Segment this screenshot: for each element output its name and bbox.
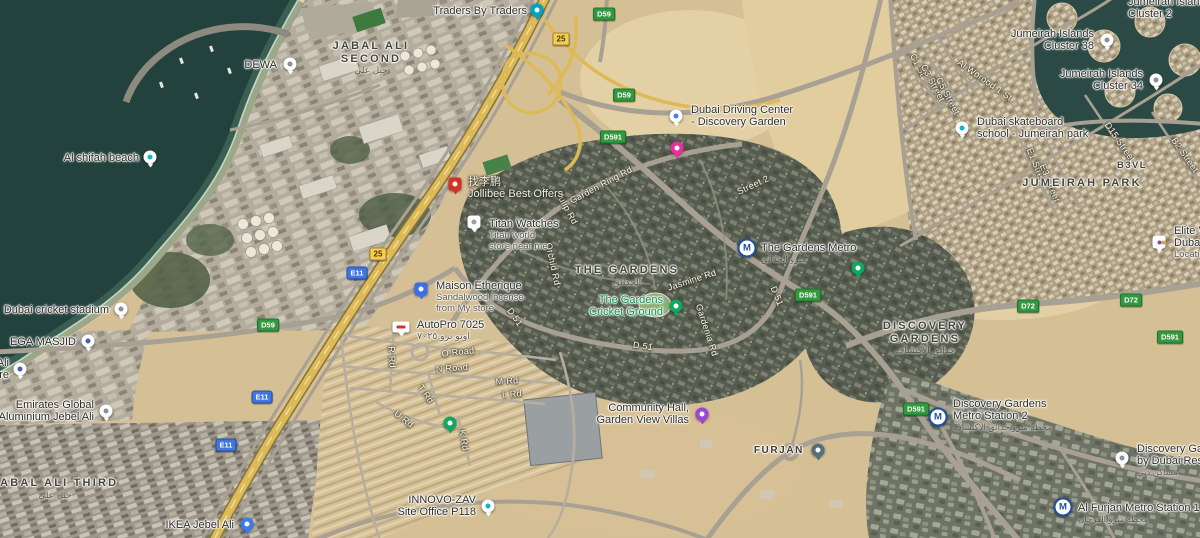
al-furjan-metro-1-label[interactable]: Al Furjan Metro Station 1محطة مترو الفرج… bbox=[1078, 502, 1200, 524]
poi-label-line: FURJAN bbox=[754, 445, 804, 457]
road-label-t-rd: T Rd bbox=[416, 383, 436, 406]
innovo-zav-site-office-label[interactable]: INNOVO-ZAVSite Office P118 bbox=[398, 494, 476, 518]
pin-tail bbox=[103, 418, 109, 422]
district-line: JUMEIRAH PARK bbox=[1022, 177, 1141, 190]
poi-label-line: EGA MASJID bbox=[10, 336, 76, 348]
route-marker-e11-11: E11 bbox=[216, 439, 237, 452]
pin-tail bbox=[452, 191, 458, 195]
emirates-global-aluminium-pin-glyph bbox=[104, 409, 109, 414]
dewa-pin[interactable] bbox=[284, 58, 297, 71]
road-label-b2-street: B2 Street bbox=[1169, 136, 1200, 175]
route-marker-25-13: 25 bbox=[370, 248, 387, 261]
dubai-cricket-stadium-label[interactable]: Dubai cricket stadium bbox=[4, 304, 109, 316]
road-label-d-51: D 51 bbox=[769, 285, 786, 307]
poi-label-line: Cricket Ground bbox=[589, 306, 663, 318]
discovery-gardens-residence-clipped-pin-glyph bbox=[1120, 456, 1125, 461]
poi-sublabel-line: from My store bbox=[436, 303, 524, 314]
discovery-gardens-residence-clipped-pin[interactable] bbox=[1116, 452, 1129, 465]
poi-label-line: Al shifah beach bbox=[64, 152, 139, 164]
dewa-label[interactable]: DEWA bbox=[244, 59, 277, 71]
pin-tail bbox=[1119, 465, 1125, 469]
clipped-left-poi-pin-glyph bbox=[18, 367, 23, 372]
elite-clipped-pin[interactable] bbox=[1153, 236, 1166, 249]
poi-label-line: Jollibee Best Offers bbox=[468, 188, 563, 200]
poi-label-line: Dubai Driving Center bbox=[691, 104, 793, 116]
emirates-global-aluminium-pin[interactable] bbox=[100, 405, 113, 418]
route-marker-d59-1: D59 bbox=[613, 89, 635, 102]
poi-label-line: Cluster 38 bbox=[1011, 40, 1094, 52]
autopro-7025-pin[interactable] bbox=[393, 322, 410, 333]
pin-tail bbox=[447, 430, 453, 434]
road-label-garden-ring-rd: Garden Ring Rd bbox=[568, 164, 634, 205]
poi-label-line: re bbox=[0, 369, 9, 381]
road-label-l-rd: L Rd bbox=[502, 388, 523, 399]
route-marker-d72-7: D72 bbox=[1017, 300, 1039, 313]
poi-label-line: Aluminium Jebel Ali bbox=[0, 411, 94, 423]
the-gardens-metro-metro-icon[interactable]: M bbox=[738, 239, 757, 258]
jollibee-best-offers-pin-glyph bbox=[453, 182, 458, 187]
poi-label-line: - Discovery Garden bbox=[691, 116, 793, 128]
jumeirah-islands-cluster-34-pin[interactable] bbox=[1150, 74, 1163, 87]
pin-tail bbox=[1104, 47, 1110, 51]
road-label-m-rd: M Rd bbox=[495, 375, 518, 387]
poi-label-line: Dubai skateboard bbox=[977, 116, 1088, 128]
pin-tail bbox=[1156, 249, 1162, 253]
dubai-cricket-stadium-pin[interactable] bbox=[115, 303, 128, 316]
poi-label-line: Maison Etherique bbox=[436, 280, 524, 292]
traders-by-traders-pin-glyph bbox=[535, 8, 540, 13]
poi-label-line: IKEA Jebel Ali bbox=[166, 519, 235, 531]
al-shifah-beach-pin[interactable] bbox=[144, 151, 157, 164]
route-marker-e11-10: E11 bbox=[252, 391, 273, 404]
dewa-pin-glyph bbox=[288, 62, 293, 67]
road-label-d-51: D 51 bbox=[632, 340, 653, 353]
road-label-d15-street: D15 Street bbox=[1103, 120, 1138, 163]
maison-etherique-label[interactable]: Maison EtheriqueSandalwood incensefrom M… bbox=[436, 280, 524, 314]
poi-label-line: The Gardens bbox=[589, 294, 663, 306]
clipped-left-poi-pin[interactable] bbox=[14, 363, 27, 376]
discovery-gardens-residence-clipped-label[interactable]: Discovery Gardby Dubai Residمساكن دبي bbox=[1137, 443, 1200, 477]
district-arabic-label: الحدائق bbox=[575, 277, 679, 288]
poi-label-line: DEWA bbox=[244, 59, 277, 71]
clipped-left-poi-label[interactable]: Alire bbox=[0, 357, 9, 381]
route-marker-d591-6: D591 bbox=[1157, 331, 1183, 344]
poi-label-line: Elite V bbox=[1174, 225, 1200, 237]
dubai-skateboard-school-pin[interactable] bbox=[956, 122, 969, 135]
titan-watches-pin[interactable] bbox=[468, 216, 481, 229]
pin-tail bbox=[815, 457, 821, 461]
furjan-pin-glyph bbox=[816, 448, 821, 453]
park-pin-villas-pin-glyph bbox=[448, 421, 453, 426]
traders-by-traders-label[interactable]: Traders By Traders bbox=[433, 5, 527, 17]
route-marker-e11-9: E11 bbox=[347, 267, 368, 280]
district-line: GARDENS bbox=[883, 333, 967, 346]
pin-tail bbox=[674, 155, 680, 159]
jollibee-best-offers-pin[interactable] bbox=[449, 178, 462, 191]
emirates-global-aluminium-label[interactable]: Emirates GlobalAluminium Jebel Ali bbox=[0, 399, 94, 423]
poi-label-line: Discovery Gardens bbox=[953, 398, 1052, 410]
route-marker-d591-2: D591 bbox=[600, 131, 626, 144]
route-marker-d72-8: D72 bbox=[1120, 294, 1142, 307]
pin-tail bbox=[855, 275, 861, 279]
traders-by-traders-pin[interactable] bbox=[531, 4, 544, 17]
jumeirah-islands-cluster-38-pin[interactable] bbox=[1101, 34, 1114, 47]
poi-label-line: Community Hall, bbox=[596, 402, 689, 414]
poi-label-line: 找李鹏 bbox=[468, 176, 563, 188]
jumeirah-islands-cluster-34-label[interactable]: Jumeirah IslandsCluster 34 bbox=[1060, 68, 1143, 92]
poi-label-line: Emirates Global bbox=[0, 399, 94, 411]
district-jabal-ali-third: JABAL ALI THIRDجبل علي bbox=[0, 477, 118, 501]
poi-label-line: Jumeirah Islands bbox=[1060, 68, 1143, 80]
district-line: B3VL bbox=[1117, 160, 1147, 173]
elite-clipped-label[interactable]: Elite VDubaLocatio bbox=[1174, 225, 1200, 260]
innovo-zav-site-office-pin[interactable] bbox=[482, 500, 495, 513]
poi-label-line: Al Furjan Metro Station 1 bbox=[1078, 502, 1200, 514]
pin-tail bbox=[418, 296, 424, 300]
park-pin-gardens-east-pin[interactable] bbox=[852, 262, 865, 275]
district-jumeirah-park: JUMEIRAH PARK bbox=[1022, 177, 1141, 190]
route-marker-d59-0: D59 bbox=[593, 8, 615, 21]
pin-tail bbox=[147, 164, 153, 168]
poi-label-line: Garden View Villas bbox=[596, 414, 689, 426]
poi-label-line: Ali bbox=[0, 357, 9, 369]
furjan-pin[interactable] bbox=[812, 444, 825, 457]
ega-masjid-pin[interactable] bbox=[82, 335, 95, 348]
dubai-driving-center-pin-glyph bbox=[674, 114, 679, 119]
poi-label-line: Cluster 34 bbox=[1060, 80, 1143, 92]
ega-masjid-pin-glyph bbox=[86, 339, 91, 344]
road-label-street-2: Street 2 bbox=[736, 173, 771, 196]
poi-label-line: Duba bbox=[1174, 237, 1200, 249]
poi-label-line: Cluster 2 bbox=[1128, 8, 1200, 20]
poi-label-line: Jumeirah Islands bbox=[1128, 0, 1200, 8]
dubai-skateboard-school-label[interactable]: Dubai skateboardschool - Jumeirah park bbox=[977, 116, 1088, 140]
ikea-jebel-ali-pin[interactable] bbox=[241, 518, 254, 531]
district-jabal-ali-second: JABAL ALISECONDجبل علي bbox=[333, 40, 410, 76]
poi-sublabel-line: اوتو برو ٧٠٢٥ bbox=[417, 331, 484, 342]
map-overlays: Garden Ring RdStreet 2Tulip RdOrchid RdJ… bbox=[0, 0, 1200, 538]
district-the-gardens: THE GARDENSالحدائق bbox=[575, 264, 679, 288]
pink-poi-pin-pin-glyph bbox=[675, 146, 680, 151]
pin-tail bbox=[398, 333, 404, 337]
road-label-n-road: N Road bbox=[436, 362, 469, 374]
discovery-gardens-metro-2-label[interactable]: Discovery GardensMetro Station 2محطة متر… bbox=[953, 398, 1052, 432]
poi-arabic-label: مترو الحدائق bbox=[761, 254, 856, 264]
community-hall-gardenview-label[interactable]: Community Hall,Garden View Villas bbox=[596, 402, 689, 426]
pin-tail bbox=[673, 313, 679, 317]
pin-tail bbox=[118, 316, 124, 320]
elite-clipped-pin-glyph bbox=[1157, 240, 1161, 244]
road-label-al-worood-1-st: Al Worood 1 St bbox=[956, 57, 1015, 102]
route-marker-d591-5: D591 bbox=[903, 403, 929, 416]
route-marker-d59-3: D59 bbox=[257, 319, 279, 332]
poi-label-line: Titan Watches bbox=[489, 218, 559, 230]
pin-tail bbox=[244, 531, 250, 535]
poi-label-line: Metro Station 2 bbox=[953, 410, 1052, 422]
ikea-jebel-ali-pin-glyph bbox=[245, 522, 250, 527]
poi-label-line: INNOVO-ZAV bbox=[398, 494, 476, 506]
pin-tail bbox=[673, 123, 679, 127]
road-label-r-rd: R Rd bbox=[386, 346, 397, 368]
maison-etherique-pin[interactable] bbox=[415, 283, 428, 296]
pin-tail bbox=[534, 17, 540, 21]
maison-etherique-pin-glyph bbox=[419, 287, 424, 292]
poi-sublabel-line: Locatio bbox=[1174, 249, 1200, 260]
district-line: DISCOVERY bbox=[883, 320, 967, 333]
autopro-7025-label[interactable]: AutoPro 7025اوتو برو ٧٠٢٥ bbox=[417, 319, 484, 342]
road-label-gardenia-rd: Gardenia Rd bbox=[694, 303, 720, 358]
autopro-7025-pin-glyph bbox=[397, 326, 406, 329]
poi-label-line: The Gardens Metro bbox=[761, 242, 856, 254]
district-arabic-label: جبل علي bbox=[0, 490, 118, 501]
poi-label-line: Site Office P118 bbox=[398, 506, 476, 518]
gardens-cricket-ground-pin[interactable] bbox=[670, 300, 683, 313]
poi-sublabel-line: store near me bbox=[489, 241, 559, 252]
pin-tail bbox=[85, 348, 91, 352]
al-shifah-beach-pin-glyph bbox=[148, 155, 153, 160]
jumeirah-islands-cluster-34-pin-glyph bbox=[1154, 78, 1159, 83]
jumeirah-islands-cluster-38-label[interactable]: Jumeirah IslandsCluster 38 bbox=[1011, 28, 1094, 52]
community-hall-gardenview-pin-glyph bbox=[700, 412, 705, 417]
poi-arabic-label: محطة مترو الفرجان bbox=[1078, 514, 1200, 524]
pin-tail bbox=[287, 71, 293, 75]
poi-label-line: AutoPro 7025 bbox=[417, 319, 484, 331]
map-canvas[interactable]: Garden Ring RdStreet 2Tulip RdOrchid RdJ… bbox=[0, 0, 1200, 538]
pin-tail bbox=[1153, 87, 1159, 91]
pin-tail bbox=[485, 513, 491, 517]
district-line: JABAL ALI THIRD bbox=[0, 477, 118, 490]
poi-sublabel-line: Titan world bbox=[489, 230, 559, 241]
poi-label-line: Traders By Traders bbox=[433, 5, 527, 17]
discovery-gardens-metro-2-metro-icon[interactable]: M bbox=[929, 408, 948, 427]
district-arabic-label: حدائق الاكتشاف bbox=[883, 345, 967, 356]
ikea-jebel-ali-label[interactable]: IKEA Jebel Ali bbox=[166, 519, 235, 531]
gardens-cricket-ground-label[interactable]: The GardensCricket Ground bbox=[589, 294, 663, 318]
district-discovery-gardens: DISCOVERYGARDENSحدائق الاكتشاف bbox=[883, 320, 967, 356]
poi-label-line: Discovery Gard bbox=[1137, 443, 1200, 455]
poi-sublabel-line: Sandalwood incense bbox=[436, 292, 524, 303]
dubai-skateboard-school-pin-glyph bbox=[960, 126, 965, 131]
district-line: JABAL ALI bbox=[333, 40, 410, 53]
district-line: THE GARDENS bbox=[575, 264, 679, 277]
district-b3vl: B3VL bbox=[1117, 160, 1147, 173]
jollibee-best-offers-label[interactable]: 找李鹏Jollibee Best Offers bbox=[468, 176, 563, 200]
poi-label-line: school - Jumeirah park bbox=[977, 128, 1088, 140]
gardens-cricket-ground-pin-glyph bbox=[674, 304, 679, 309]
pin-tail bbox=[959, 135, 965, 139]
innovo-zav-site-office-pin-glyph bbox=[486, 504, 491, 509]
district-line: SECOND bbox=[333, 53, 410, 66]
road-label-k-rd: K Rd bbox=[457, 429, 471, 452]
ega-masjid-label[interactable]: EGA MASJID bbox=[10, 336, 76, 348]
pin-tail bbox=[699, 421, 705, 425]
pink-poi-pin-pin[interactable] bbox=[671, 142, 684, 155]
jumeirah-islands-cluster-38-pin-glyph bbox=[1105, 38, 1110, 43]
road-label-u-rd: U Rd bbox=[392, 408, 415, 429]
dubai-driving-center-label[interactable]: Dubai Driving Center- Discovery Garden bbox=[691, 104, 793, 128]
al-shifah-beach-label[interactable]: Al shifah beach bbox=[64, 152, 139, 164]
jumeirah-islands-cluster-2-clipped-label[interactable]: Jumeirah IslandsCluster 2 bbox=[1128, 0, 1200, 20]
titan-watches-pin-glyph bbox=[472, 220, 477, 225]
route-marker-d591-4: D591 bbox=[795, 289, 821, 302]
road-label-o-road: O Road bbox=[441, 345, 475, 358]
poi-arabic-label: مساكن دبي bbox=[1137, 467, 1200, 477]
titan-watches-label[interactable]: Titan WatchesTitan worldstore near me bbox=[489, 218, 559, 252]
pin-tail bbox=[17, 376, 23, 380]
poi-label-line: Jumeirah Islands bbox=[1011, 28, 1094, 40]
route-marker-25-12: 25 bbox=[553, 33, 570, 46]
poi-arabic-label: محطة مترو حدائق الاكتشاف bbox=[953, 422, 1052, 432]
dubai-cricket-stadium-pin-glyph bbox=[119, 307, 124, 312]
poi-label-line: by Dubai Resid bbox=[1137, 455, 1200, 467]
al-furjan-metro-1-metro-icon[interactable]: M bbox=[1054, 498, 1073, 517]
community-hall-gardenview-pin[interactable] bbox=[696, 408, 709, 421]
district-arabic-label: جبل علي bbox=[333, 65, 410, 76]
poi-label-line: Dubai cricket stadium bbox=[4, 304, 109, 316]
park-pin-villas-pin[interactable] bbox=[444, 417, 457, 430]
furjan-label[interactable]: FURJAN bbox=[754, 445, 804, 457]
dubai-driving-center-pin[interactable] bbox=[670, 110, 683, 123]
pin-tail bbox=[471, 229, 477, 233]
park-pin-gardens-east-pin-glyph bbox=[856, 266, 861, 271]
the-gardens-metro-label[interactable]: The Gardens Metroمترو الحدائق bbox=[761, 242, 856, 264]
